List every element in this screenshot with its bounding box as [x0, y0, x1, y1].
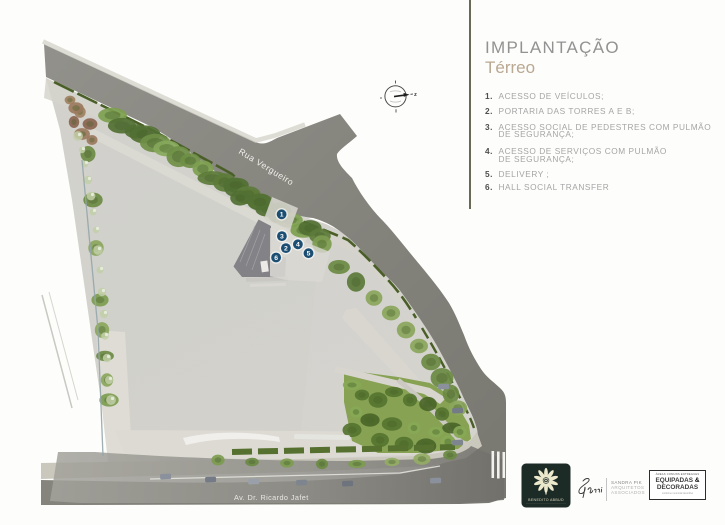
svg-text:6: 6	[274, 255, 278, 262]
svg-text:z: z	[414, 92, 417, 98]
svg-text:Av. Dr. Ricardo Jafet: Av. Dr. Ricardo Jafet	[234, 493, 309, 502]
svg-text:3: 3	[280, 234, 284, 241]
svg-text:4: 4	[296, 242, 300, 249]
svg-text:2: 2	[284, 246, 288, 253]
svg-text:1: 1	[280, 212, 284, 219]
svg-text:5: 5	[307, 251, 311, 258]
svg-text:BENEDITO ABBUD: BENEDITO ABBUD	[528, 498, 564, 502]
